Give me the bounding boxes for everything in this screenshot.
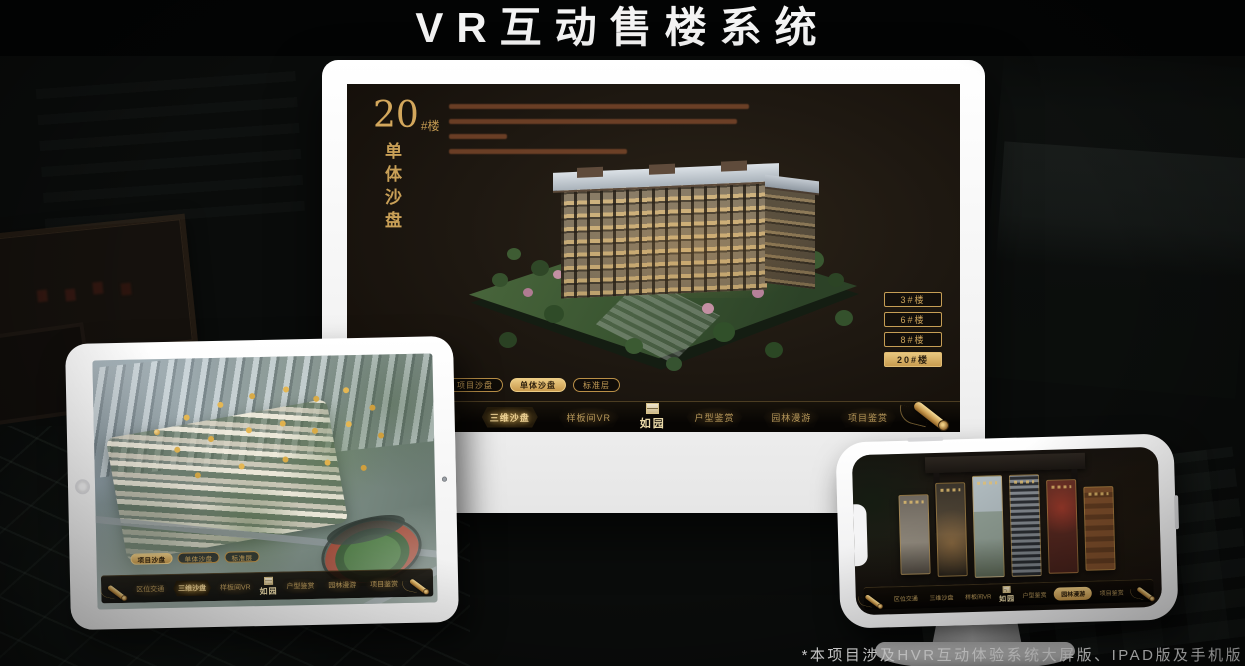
tablet-nav-showroom-vr[interactable]: 样板间VR bbox=[215, 579, 256, 596]
nav-item-project-gallery[interactable]: 项目鉴赏 bbox=[840, 407, 896, 428]
phone-screen: 区位交通 三维沙盘 样板间VR 如园 户型鉴赏 园林漫游 项目鉴赏 bbox=[852, 447, 1162, 615]
tablet-screen: 项目沙盘 单体沙盘 标准层 区位交通 三维沙盘 样板间VR 如园 户型鉴赏 园林… bbox=[92, 353, 437, 609]
scroll-menu-icon-right[interactable] bbox=[1133, 585, 1156, 604]
description-text-blurred bbox=[449, 104, 769, 164]
scroll-menu-icon-right[interactable] bbox=[405, 577, 431, 597]
tablet-camera bbox=[442, 477, 447, 482]
building-3d-model[interactable] bbox=[465, 160, 865, 380]
gallery-panel-6[interactable] bbox=[1083, 486, 1115, 571]
scroll-menu-icon-left[interactable] bbox=[103, 583, 129, 603]
tablet-tab-single-sandtable[interactable]: 单体沙盘 bbox=[177, 552, 219, 564]
gallery-panel-5[interactable] bbox=[1046, 479, 1079, 574]
logo-text: 如园 bbox=[999, 594, 1015, 604]
page: VR互动售楼系统 20 #楼 单体沙盘 bbox=[0, 0, 1245, 666]
tablet-nav-unit-plans[interactable]: 户型鉴赏 bbox=[281, 577, 319, 594]
phone-nav-3d-sandtable[interactable]: 三维沙盘 bbox=[925, 590, 957, 604]
tab-project-sandtable[interactable]: 项目沙盘 bbox=[447, 378, 503, 392]
phone-logo-ruyuan[interactable]: 如园 bbox=[999, 586, 1015, 604]
phone-nav-project-gallery[interactable]: 项目鉴赏 bbox=[1096, 585, 1128, 599]
seal-icon bbox=[264, 576, 273, 584]
tablet-nav-project-gallery[interactable]: 项目鉴赏 bbox=[365, 576, 403, 593]
image-gallery bbox=[898, 472, 1116, 580]
model-building-front bbox=[561, 178, 767, 299]
gallery-panel-1[interactable] bbox=[898, 494, 930, 575]
floor-button-8[interactable]: 8#楼 bbox=[884, 332, 942, 347]
tab-single-sandtable-active[interactable]: 单体沙盘 bbox=[510, 378, 566, 392]
tablet-nav-3d-sandtable-active[interactable]: 三维沙盘 bbox=[173, 580, 211, 597]
title-strip: VR互动售楼系统 bbox=[0, 0, 1245, 56]
logo-text: 如园 bbox=[260, 585, 278, 596]
tablet-nav-garden-tour[interactable]: 园林漫游 bbox=[323, 576, 361, 593]
tablet-tab-standard-floor[interactable]: 标准层 bbox=[224, 551, 259, 563]
scroll-menu-icon[interactable] bbox=[906, 398, 952, 432]
phone-power-button bbox=[907, 437, 943, 442]
gallery-panel-4[interactable] bbox=[1009, 474, 1042, 577]
nav-item-3d-sandtable-active[interactable]: 三维沙盘 bbox=[482, 407, 538, 428]
phone-notch bbox=[852, 504, 868, 566]
floor-button-20-active[interactable]: 20#楼 bbox=[884, 352, 942, 367]
tab-standard-floor[interactable]: 标准层 bbox=[573, 378, 620, 392]
background-screens bbox=[35, 61, 305, 229]
page-title: VR互动售楼系统 bbox=[415, 7, 829, 49]
building-subtitle: 单体沙盘 bbox=[379, 142, 404, 234]
floor-button-group: 3#楼 6#楼 8#楼 20#楼 bbox=[884, 292, 942, 367]
model-building-side bbox=[765, 187, 815, 289]
building-number: 20 bbox=[373, 98, 419, 134]
building-headline: 20 #楼 单体沙盘 bbox=[373, 98, 440, 234]
seal-icon bbox=[646, 403, 659, 414]
tablet-nav-location[interactable]: 区位交通 bbox=[131, 580, 169, 597]
seal-icon bbox=[1003, 586, 1011, 593]
nav-item-unit-plans[interactable]: 户型鉴赏 bbox=[686, 407, 742, 428]
phone-device: 区位交通 三维沙盘 样板间VR 如园 户型鉴赏 园林漫游 项目鉴赏 bbox=[835, 433, 1178, 628]
model-trees bbox=[507, 248, 521, 260]
building-markers[interactable] bbox=[154, 429, 160, 435]
phone-nav-garden-tour-active[interactable]: 园林漫游 bbox=[1054, 586, 1092, 600]
building-number-suffix: #楼 bbox=[421, 117, 440, 134]
logo-ruyuan[interactable]: 如园 bbox=[640, 403, 666, 431]
floor-button-3[interactable]: 3#楼 bbox=[884, 292, 942, 307]
tablet-device: 项目沙盘 单体沙盘 标准层 区位交通 三维沙盘 样板间VR 如园 户型鉴赏 园林… bbox=[65, 336, 459, 630]
nav-item-showroom-vr[interactable]: 样板间VR bbox=[559, 407, 620, 428]
tablet-tab-project-sandtable-active[interactable]: 项目沙盘 bbox=[130, 553, 172, 565]
footnote: *本项目涉及HVR互动体验系统大屏版、IPAD版及手机版 bbox=[802, 644, 1243, 665]
background-photo-band bbox=[996, 141, 1245, 278]
logo-text: 如园 bbox=[640, 415, 666, 431]
phone-nav-unit-plans[interactable]: 户型鉴赏 bbox=[1018, 587, 1050, 601]
view-tab-group: 项目沙盘 单体沙盘 标准层 bbox=[447, 378, 620, 392]
scroll-menu-icon-left[interactable] bbox=[861, 592, 884, 611]
phone-nav-location[interactable]: 区位交通 bbox=[890, 591, 922, 605]
tablet-home-button bbox=[75, 479, 90, 494]
floor-button-6[interactable]: 6#楼 bbox=[884, 312, 942, 327]
phone-nav-showroom-vr[interactable]: 样板间VR bbox=[961, 589, 996, 603]
gallery-panel-3[interactable] bbox=[972, 475, 1005, 578]
tablet-logo-ruyuan[interactable]: 如园 bbox=[259, 576, 277, 596]
gallery-panel-2[interactable] bbox=[935, 482, 968, 577]
nav-item-garden-tour[interactable]: 园林漫游 bbox=[763, 407, 819, 428]
